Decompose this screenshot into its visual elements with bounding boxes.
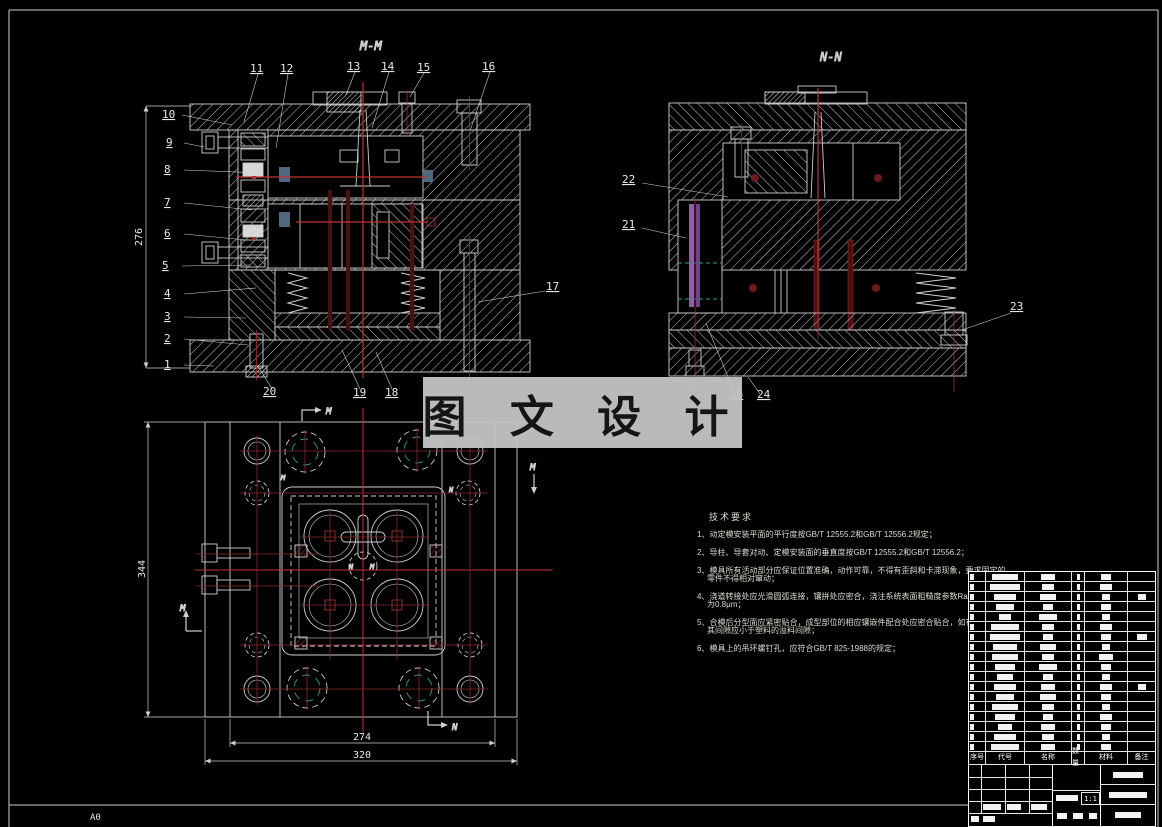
callout-23: 23 <box>1010 300 1023 313</box>
bom-row <box>969 632 1155 642</box>
bom-row <box>969 572 1155 582</box>
bom-row <box>969 642 1155 652</box>
plan-view: M M M N N M M N <box>179 407 553 733</box>
bom-header-row: 序号 代号 名称 数量 材料 备注 <box>969 752 1155 765</box>
callout-14: 14 <box>381 60 395 73</box>
bom-row <box>969 692 1155 702</box>
tech-line-1: 1、动定模安装平面的平行度按GB/T 12555.2和GB/T 12556.2规… <box>697 529 959 541</box>
callout-6: 6 <box>164 227 171 240</box>
title-block: 1:1 <box>969 765 1155 826</box>
bom-header-index: 序号 <box>969 752 986 764</box>
marker-n-bottom: N <box>451 723 458 733</box>
bom-row <box>969 612 1155 622</box>
bom-row <box>969 682 1155 692</box>
callout-24: 24 <box>757 388 771 401</box>
callout-7: 7 <box>164 196 171 209</box>
bom-header-code: 代号 <box>986 752 1025 764</box>
callout-16: 16 <box>482 60 495 73</box>
bom-row <box>969 622 1155 632</box>
marker-n-corner: N <box>448 486 454 494</box>
callout-3: 3 <box>164 310 171 323</box>
marker-m-corner: M <box>280 474 286 482</box>
watermark: 图 文 设 计 <box>423 377 742 448</box>
callout-10: 10 <box>162 108 175 121</box>
callout-9: 9 <box>166 136 173 149</box>
section-label-mm: M-M <box>359 39 382 53</box>
title-block-org-cell <box>1101 765 1155 785</box>
title-block-drawing-no-cell <box>1101 805 1155 825</box>
callout-5: 5 <box>162 259 169 272</box>
marker-n-center: N <box>348 563 354 571</box>
bom-header-remark: 备注 <box>1128 752 1155 764</box>
dim-plan-outer-width: 320 <box>353 750 371 761</box>
callout-4: 4 <box>164 287 171 300</box>
drawing-scale: 1:1 <box>1081 792 1100 805</box>
watermark-text: 图 文 设 计 <box>423 381 743 445</box>
bom-row <box>969 592 1155 602</box>
callout-17: 17 <box>546 280 559 293</box>
tech-requirements-title: 技术要求 <box>709 511 959 523</box>
marker-m-center: M <box>369 563 375 571</box>
bom-row <box>969 582 1155 592</box>
dim-mm-height: 276 <box>134 228 145 246</box>
bom-row <box>969 602 1155 612</box>
callout-2: 2 <box>164 332 171 345</box>
callout-13: 13 <box>347 60 360 73</box>
callout-22: 22 <box>622 173 635 186</box>
corner-screws <box>295 545 442 649</box>
bom-header-qty: 数量 <box>1072 752 1085 764</box>
bom-row <box>969 742 1155 752</box>
bom-row <box>969 712 1155 722</box>
bom-row <box>969 722 1155 732</box>
title-block-drawing-name-cell <box>1101 785 1155 805</box>
marker-m-left: M <box>179 604 186 614</box>
dim-plan-inner-width: 274 <box>353 732 371 743</box>
tech-requirements: 技术要求 1、动定模安装平面的平行度按GB/T 12555.2和GB/T 125… <box>697 511 959 661</box>
section-markers <box>183 407 537 728</box>
callout-20: 20 <box>263 385 276 398</box>
bom-title-block: 序号 代号 名称 数量 材料 备注 1:1 <box>968 571 1156 827</box>
section-view-mm: M-M <box>190 39 530 380</box>
title-block-revision-grid <box>969 765 1053 826</box>
section-label-nn: N-N <box>819 50 842 64</box>
title-block-right <box>1101 765 1155 826</box>
bom-row <box>969 662 1155 672</box>
section-view-nn: N-N <box>669 50 967 392</box>
bom-row <box>969 732 1155 742</box>
tech-line-2: 2、导柱、导套对动、定模安装面的垂直度按GB/T 12555.2和GB/T 12… <box>697 547 959 559</box>
guide-bushing-circles <box>285 430 439 708</box>
bom-header-name: 名称 <box>1025 752 1072 764</box>
callout-19: 19 <box>353 386 366 399</box>
dim-plan-height: 344 <box>137 560 148 578</box>
bom-header-material: 材料 <box>1085 752 1128 764</box>
title-block-middle: 1:1 <box>1053 765 1101 826</box>
callout-1: 1 <box>164 358 171 371</box>
bom-row <box>969 702 1155 712</box>
cad-drawing-sheet: A0 M-M <box>0 0 1162 827</box>
callout-15: 15 <box>417 61 430 74</box>
bom-row <box>969 672 1155 682</box>
sheet-size-label: A0 <box>90 813 101 823</box>
bom-row <box>969 652 1155 662</box>
bom-rows: 序号 代号 名称 数量 材料 备注 <box>969 572 1155 765</box>
callout-21: 21 <box>622 218 635 231</box>
tech-line-6: 6、模具上的吊环螺钉孔，应符合GB/T 825-1988的规定； <box>697 643 959 655</box>
callout-18: 18 <box>385 386 398 399</box>
callout-8: 8 <box>164 163 171 176</box>
callout-12: 12 <box>280 62 293 75</box>
marker-m-top: M <box>325 407 332 417</box>
marker-m-right: M <box>529 463 536 473</box>
callout-11: 11 <box>250 62 263 75</box>
